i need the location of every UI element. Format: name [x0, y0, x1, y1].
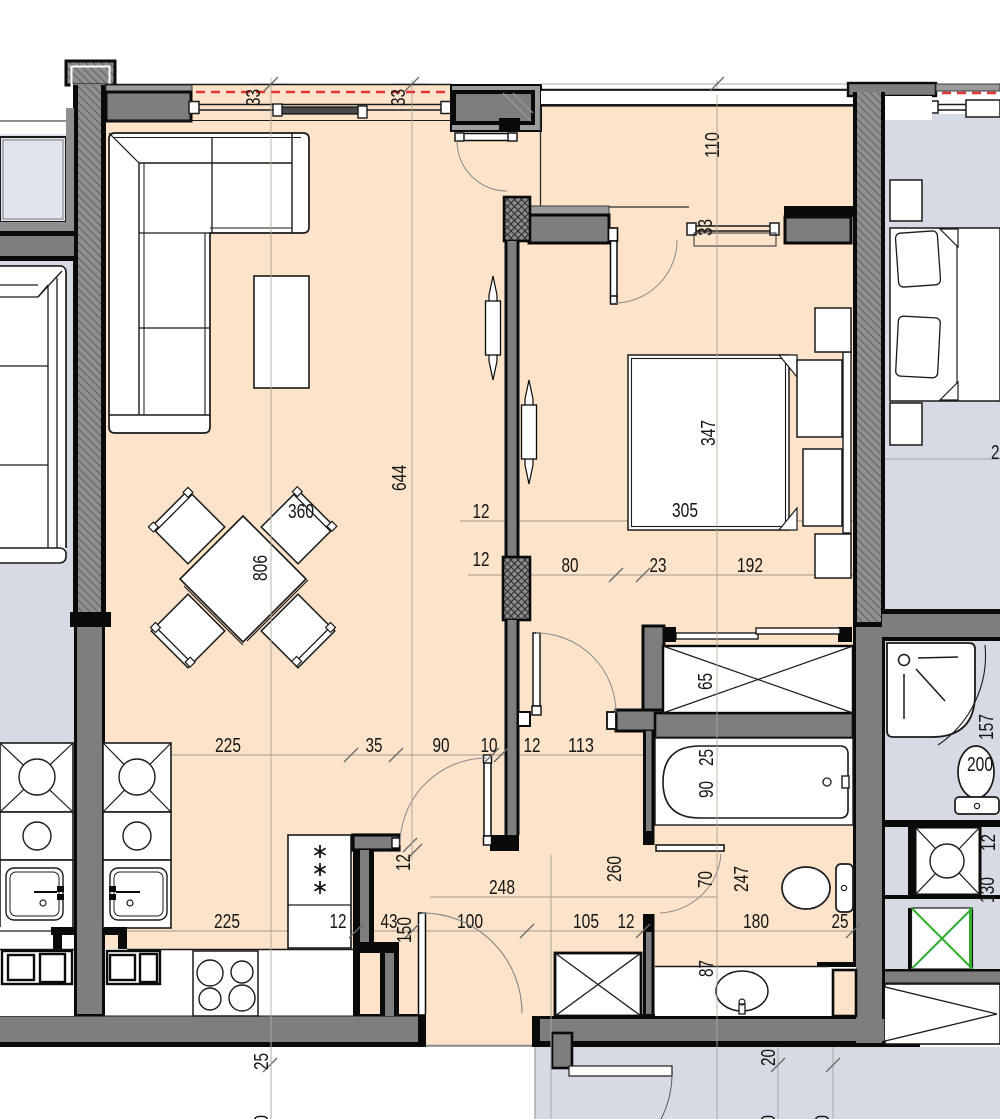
svg-text:25: 25: [991, 442, 1000, 464]
svg-text:0: 0: [251, 1115, 273, 1119]
svg-text:157: 157: [976, 714, 998, 740]
svg-text:150: 150: [394, 917, 416, 943]
svg-text:305: 305: [672, 500, 698, 522]
svg-text:25: 25: [696, 749, 718, 766]
svg-text:12: 12: [978, 834, 1000, 851]
svg-text:130: 130: [977, 877, 999, 903]
svg-text:25: 25: [251, 1053, 273, 1070]
svg-text:192: 192: [737, 555, 763, 577]
svg-text:70: 70: [695, 871, 717, 888]
svg-text:25: 25: [832, 911, 849, 933]
svg-text:12: 12: [473, 501, 490, 523]
svg-text:180: 180: [743, 911, 769, 933]
svg-text:35: 35: [366, 735, 383, 757]
svg-text:80: 80: [562, 555, 579, 577]
svg-text:100: 100: [457, 911, 483, 933]
svg-text:113: 113: [568, 735, 594, 757]
svg-text:33: 33: [388, 89, 410, 106]
svg-text:12: 12: [330, 911, 347, 933]
svg-text:225: 225: [214, 911, 240, 933]
svg-text:806: 806: [250, 555, 272, 581]
svg-text:90: 90: [696, 781, 718, 798]
svg-text:0: 0: [812, 1115, 834, 1119]
svg-text:87: 87: [696, 960, 718, 977]
svg-text:33: 33: [695, 219, 717, 236]
svg-text:20: 20: [758, 1049, 780, 1066]
svg-text:12: 12: [618, 911, 635, 933]
svg-text:105: 105: [573, 911, 599, 933]
svg-text:247: 247: [731, 866, 753, 892]
svg-text:644: 644: [389, 465, 411, 491]
svg-text:225: 225: [215, 735, 241, 757]
svg-text:110: 110: [702, 132, 724, 158]
svg-text:248: 248: [489, 877, 515, 899]
svg-text:33: 33: [243, 89, 265, 106]
svg-text:360: 360: [288, 501, 314, 523]
svg-text:90: 90: [433, 735, 450, 757]
svg-text:12: 12: [473, 549, 490, 571]
svg-text:260: 260: [604, 856, 626, 882]
svg-text:200: 200: [967, 754, 993, 776]
svg-text:10: 10: [481, 735, 498, 757]
svg-text:23: 23: [650, 555, 667, 577]
svg-text:0: 0: [758, 1115, 780, 1119]
svg-text:12: 12: [393, 854, 415, 871]
svg-text:65: 65: [695, 673, 717, 690]
svg-text:12: 12: [524, 735, 541, 757]
